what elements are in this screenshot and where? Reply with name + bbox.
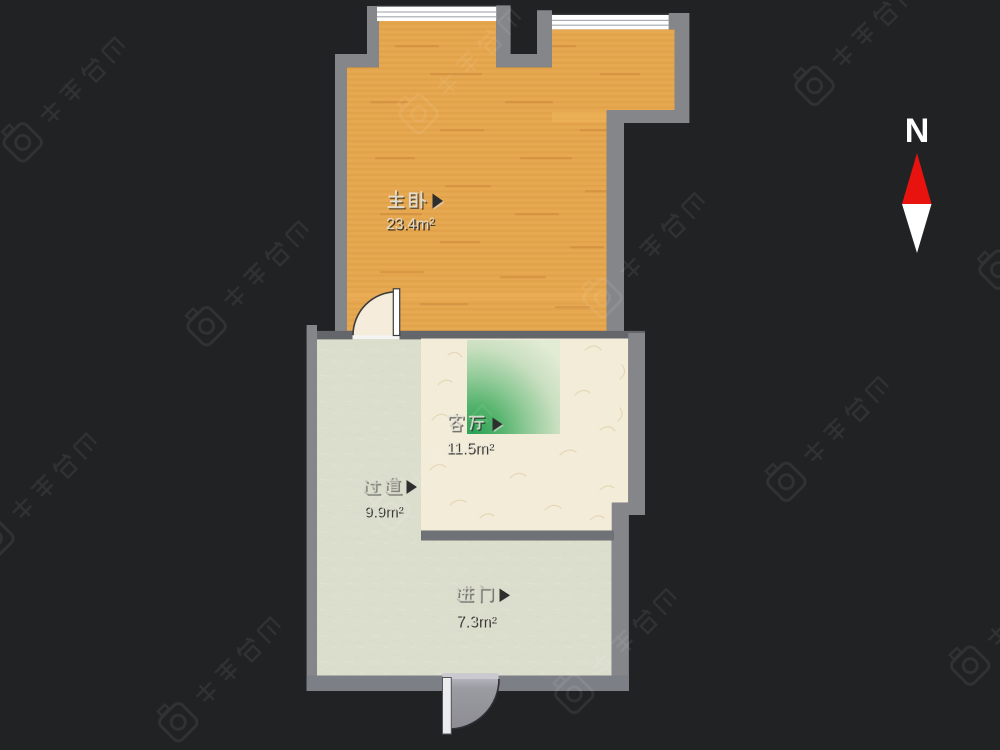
svg-text:23.4m²: 23.4m² (386, 216, 435, 233)
svg-text:9.9m²: 9.9m² (364, 503, 402, 520)
svg-text:N: N (905, 112, 930, 150)
svg-text:11.5m²: 11.5m² (446, 440, 493, 457)
svg-text:7.3m²: 7.3m² (456, 613, 496, 630)
